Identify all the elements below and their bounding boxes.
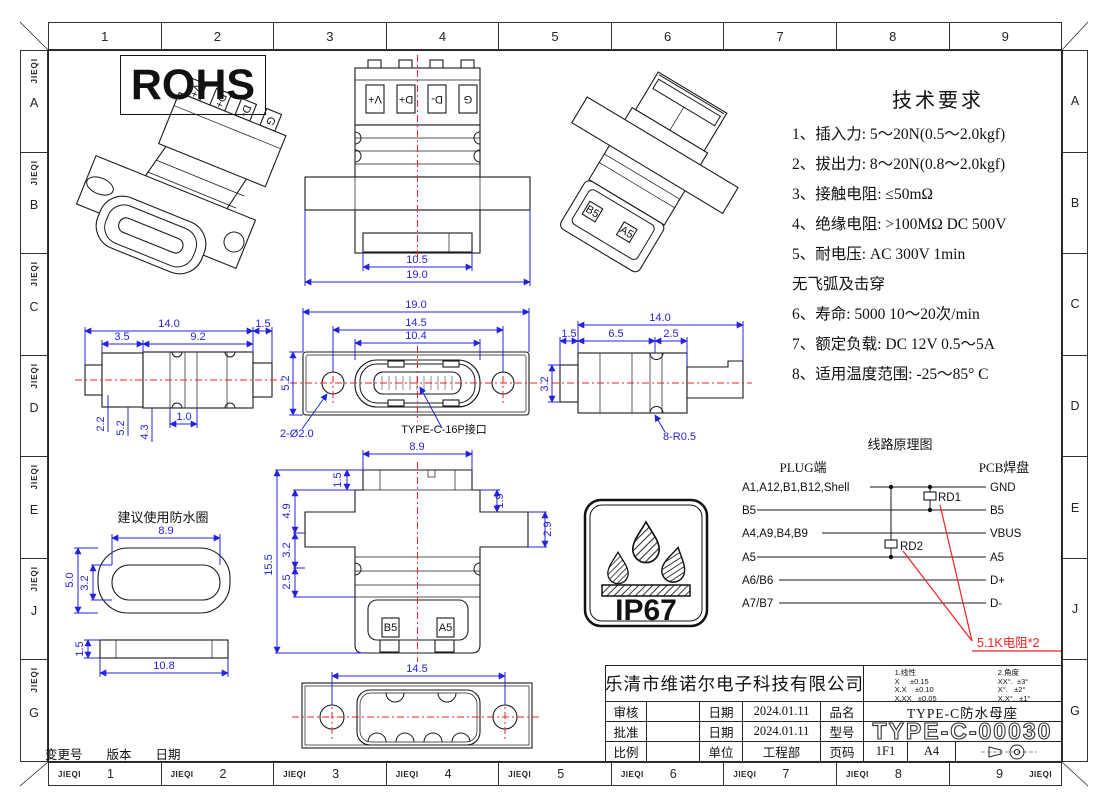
tech-line: 6、寿命: 5000 10～20次/min xyxy=(792,300,1084,330)
grid-col: 7 xyxy=(782,767,789,781)
grid-col: 3 xyxy=(274,22,387,50)
unit-value: 工程部 xyxy=(742,741,820,761)
grid-col: 9 xyxy=(950,22,1063,50)
brand-label: JIEQI xyxy=(30,363,39,388)
brand-label: JIEQI xyxy=(30,261,39,286)
brand-label: JIEQI xyxy=(30,160,39,185)
company-name: 乐清市维诺尔电子科技有限公司 xyxy=(606,666,863,701)
title-block: 乐清市维诺尔电子科技有限公司 1.线性 X ±0.15 X.X ±0.10 X.… xyxy=(605,665,1062,762)
grid-cell: JIEQIC xyxy=(20,254,48,356)
tech-line: 8、适用温度范围: -25～85° C xyxy=(792,360,1084,390)
brand-label: JIEQI xyxy=(396,770,419,779)
brand-label: JIEQI xyxy=(30,464,39,489)
grid-cell: JIEQID xyxy=(20,356,48,458)
grid-cell: JIEQIG xyxy=(20,660,48,762)
revision-date-label: 日期 xyxy=(156,744,181,763)
brand-label: JIEQI xyxy=(508,770,531,779)
brand-label: JIEQI xyxy=(30,58,39,83)
revision-row: 变更号 版本 日期 xyxy=(45,744,181,763)
date-label: 日期 xyxy=(699,721,742,741)
border-strip-top: 1 2 3 4 5 6 7 8 9 xyxy=(48,22,1062,50)
approve-value xyxy=(646,721,699,741)
drawing-sheet: V+ D+ D- G 10.5 19.0 xyxy=(0,0,1100,811)
tolerance-table: 1.线性 X ±0.15 X.X ±0.10 X.XX ±0.05 2.角度 X… xyxy=(863,666,1061,701)
grid-col: 4 xyxy=(387,22,500,50)
brand-label: JIEQI xyxy=(846,770,869,779)
grid-row: G xyxy=(1062,660,1088,762)
tech-line: 3、接触电阻: ≤50mΩ xyxy=(792,180,1084,210)
grid-cell: JIEQI2 xyxy=(162,762,275,786)
first-angle-projection-icon xyxy=(979,743,1039,761)
grid-cell: JIEQI9 xyxy=(950,762,1063,786)
approve-date: 2024.01.11 xyxy=(742,721,820,741)
date-label: 日期 xyxy=(699,701,742,721)
brand-label: JIEQI xyxy=(171,770,194,779)
grid-cell: JIEQI8 xyxy=(837,762,950,786)
grid-row: E xyxy=(30,503,38,517)
brand-label: JIEQI xyxy=(30,667,39,692)
grid-col: 1 xyxy=(107,767,114,781)
rohs-badge: ROHS xyxy=(120,55,266,115)
grid-cell: JIEQI1 xyxy=(48,762,162,786)
border-strip-bottom: JIEQI1 JIEQI2 JIEQI3 JIEQI4 JIEQI5 JIEQI… xyxy=(48,762,1062,786)
approve-label: 批准 xyxy=(606,721,646,741)
review-value xyxy=(646,701,699,721)
grid-row: G xyxy=(29,706,39,720)
product-name: TYPE-C防水母座 xyxy=(863,701,1061,721)
tech-line: 1、插入力: 5～20N(0.5～2.0kgf) xyxy=(792,120,1084,150)
grid-col: 6 xyxy=(612,22,725,50)
unit-label: 单位 xyxy=(699,741,742,761)
brand-label: JIEQI xyxy=(58,770,81,779)
tolerance-angle: 2.角度 XX°. ±3° X°. ±2° X.X°. ±1° xyxy=(998,669,1031,701)
grid-col: 1 xyxy=(48,22,162,50)
grid-cell: JIEQI5 xyxy=(499,762,612,786)
grid-cell: JIEQIA xyxy=(20,50,48,153)
tech-line: 4、绝缘电阻: >100MΩ DC 500V xyxy=(792,210,1084,240)
grid-col: 2 xyxy=(220,767,227,781)
scale-label: 比例 xyxy=(606,741,646,761)
brand-label: JIEQI xyxy=(1029,770,1052,779)
grid-col: 4 xyxy=(445,767,452,781)
page-value: 1F1 xyxy=(863,741,907,761)
revision-version-label: 版本 xyxy=(107,744,132,763)
tolerance-linear: 1.线性 X ±0.15 X.X ±0.10 X.XX ±0.05 xyxy=(895,669,937,701)
grid-col: 9 xyxy=(996,767,1003,781)
grid-cell: JIEQIJ xyxy=(20,559,48,661)
border-strip-left: JIEQIA JIEQIB JIEQIC JIEQID JIEQIE JIEQI… xyxy=(20,50,48,762)
brand-label: JIEQI xyxy=(283,770,306,779)
grid-cell: JIEQIB xyxy=(20,153,48,255)
model-label: 型号 xyxy=(820,721,863,741)
grid-row: J xyxy=(1062,559,1088,661)
tech-line: 无飞弧及击穿 xyxy=(792,270,1084,300)
grid-col: 8 xyxy=(837,22,950,50)
product-name-label: 品名 xyxy=(820,701,863,721)
grid-cell: JIEQIE xyxy=(20,457,48,559)
grid-col: 3 xyxy=(332,767,339,781)
grid-col: 2 xyxy=(162,22,275,50)
brand-label: JIEQI xyxy=(733,770,756,779)
brand-label: JIEQI xyxy=(621,770,644,779)
projection-symbol-cell xyxy=(955,741,1061,761)
paper-size: A4 xyxy=(907,741,955,761)
page-label: 页码 xyxy=(820,741,863,761)
tech-line: 7、额定负载: DC 12V 0.5～5A xyxy=(792,330,1084,360)
grid-row: B xyxy=(30,198,38,212)
grid-col: 8 xyxy=(895,767,902,781)
grid-col: 5 xyxy=(557,767,564,781)
grid-col: 5 xyxy=(499,22,612,50)
grid-cell: JIEQI3 xyxy=(274,762,387,786)
review-label: 审核 xyxy=(606,701,646,721)
grid-row: E xyxy=(1062,457,1088,559)
tech-line: 5、耐电压: AC 300V 1min xyxy=(792,240,1084,270)
grid-row: A xyxy=(30,96,38,110)
grid-row: C xyxy=(29,300,38,314)
grid-row: D xyxy=(29,401,38,415)
model-number: TYPE-C-00030 xyxy=(863,721,1061,741)
review-date: 2024.01.11 xyxy=(742,701,820,721)
revision-change-label: 变更号 xyxy=(45,744,83,763)
technical-requirements: 技术要求 1、插入力: 5～20N(0.5～2.0kgf) 2、拔出力: 8～2… xyxy=(792,84,1084,390)
brand-label: JIEQI xyxy=(30,566,39,591)
scale-value xyxy=(646,741,699,761)
tech-title: 技术要求 xyxy=(792,84,1084,113)
grid-cell: JIEQI6 xyxy=(612,762,725,786)
grid-col: 6 xyxy=(670,767,677,781)
grid-col: 7 xyxy=(724,22,837,50)
grid-cell: JIEQI4 xyxy=(387,762,500,786)
grid-row: J xyxy=(31,604,37,618)
tech-line: 2、拔出力: 8～20N(0.8～2.0kgf) xyxy=(792,150,1084,180)
grid-cell: JIEQI7 xyxy=(724,762,837,786)
